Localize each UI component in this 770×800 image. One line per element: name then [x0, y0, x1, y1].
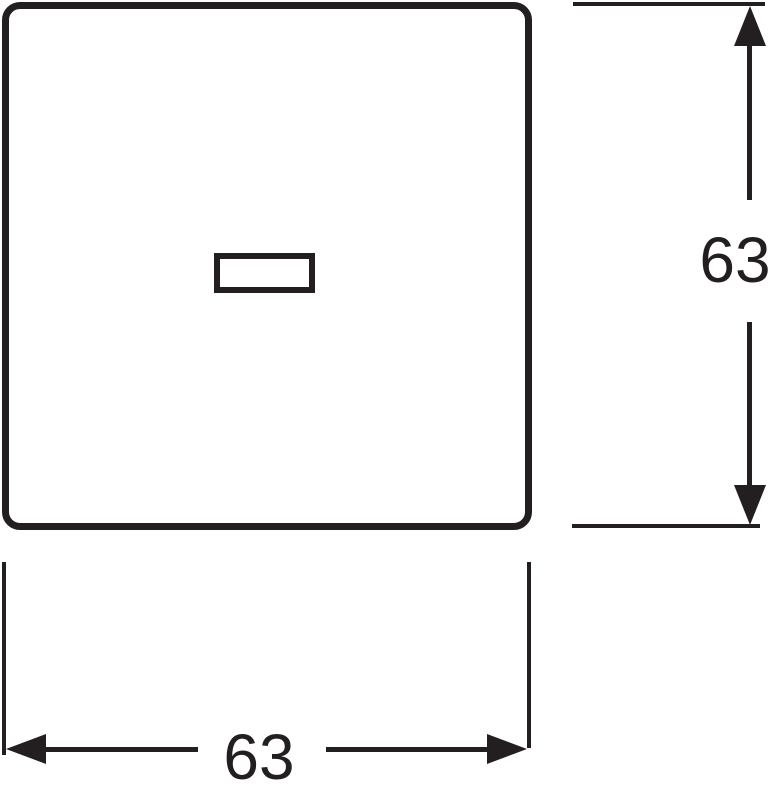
dimension-line-right-segment: [326, 747, 487, 752]
drawing-canvas: 63 63: [0, 0, 770, 800]
arrowhead-right-icon: [487, 734, 527, 764]
lens-window: [214, 253, 315, 293]
vertical-dimension-label: 63: [699, 228, 770, 292]
extension-line-right: [527, 562, 531, 748]
arrowhead-up-icon: [734, 6, 766, 46]
arrowhead-down-icon: [734, 485, 766, 525]
dimension-line-lower-segment: [747, 322, 752, 486]
dimension-line-upper-segment: [747, 45, 752, 200]
dimension-line-left-segment: [46, 747, 198, 752]
extension-line-bottom: [572, 524, 760, 528]
arrowhead-left-icon: [6, 734, 46, 764]
horizontal-dimension-label: 63: [223, 725, 294, 789]
extension-line-left: [2, 562, 6, 755]
